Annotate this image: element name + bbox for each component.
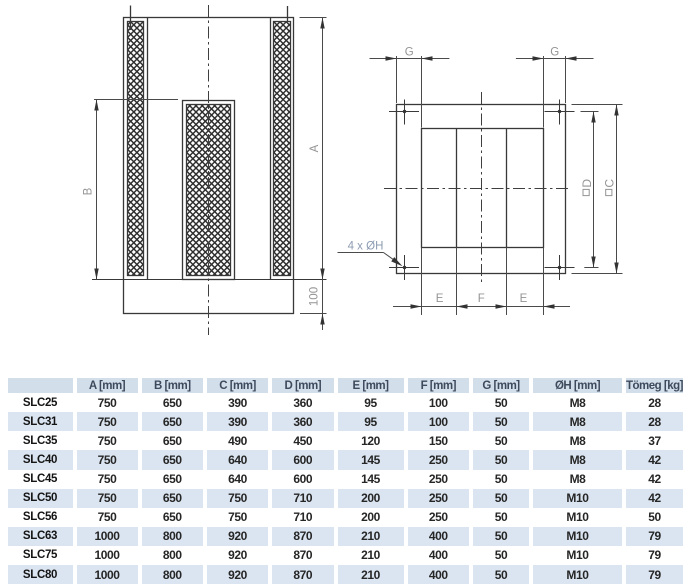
- svg-text:E: E: [436, 293, 444, 305]
- svg-text:G: G: [550, 47, 559, 59]
- svg-text:B: B: [83, 187, 95, 195]
- svg-text:E: E: [520, 293, 528, 305]
- svg-text:F: F: [478, 293, 485, 305]
- svg-text:C: C: [603, 179, 617, 188]
- svg-text:A: A: [309, 144, 321, 152]
- svg-text:4 x ØH: 4 x ØH: [348, 241, 384, 253]
- svg-text:100: 100: [309, 287, 321, 306]
- svg-text:G: G: [405, 47, 414, 59]
- svg-text:D: D: [580, 179, 594, 188]
